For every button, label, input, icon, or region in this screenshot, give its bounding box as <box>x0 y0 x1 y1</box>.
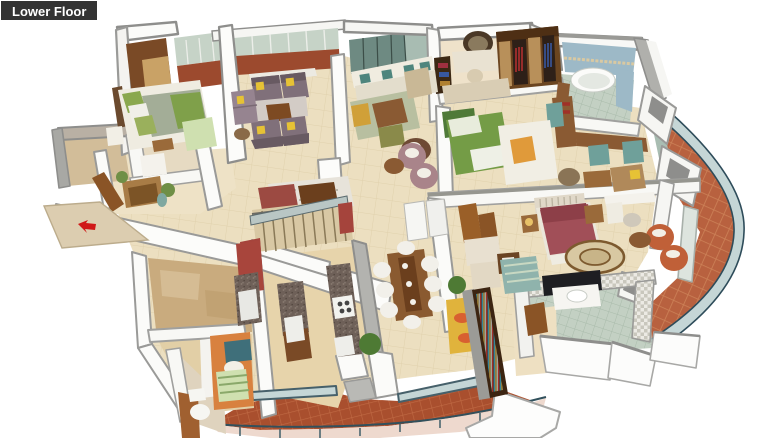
svg-text:Lower Floor: Lower Floor <box>12 4 86 19</box>
